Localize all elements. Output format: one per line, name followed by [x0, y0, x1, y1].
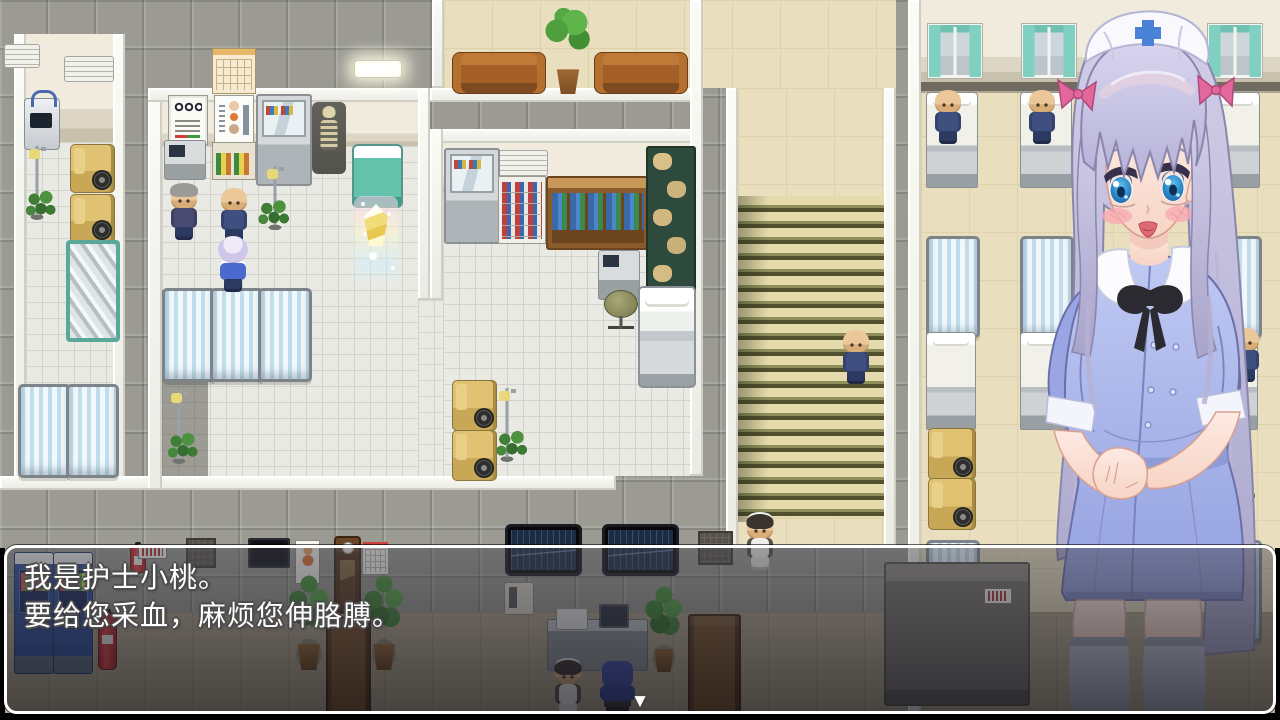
blush-right: [1165, 206, 1193, 222]
wheelchair: [70, 144, 115, 193]
npc-bald-patient: [932, 90, 964, 142]
npc-bald-patient: [840, 330, 872, 386]
privacy-screen: [162, 288, 216, 382]
potted-plant: [256, 194, 292, 230]
npc-head: [843, 330, 869, 354]
air-conditioner: [498, 150, 548, 176]
standing-mirror: [66, 240, 120, 342]
game-viewport[interactable]: 我是护士小桃。 要给您采血，麻烦您伸胳膊。 ▼: [0, 0, 1280, 720]
room-floor-seam: [418, 300, 443, 476]
letterbox-bottom: [0, 713, 1280, 720]
ward-bed: [926, 332, 976, 430]
npc-hair: [218, 236, 248, 263]
folding-screen: [66, 384, 119, 478]
stairs-shadow: [738, 196, 768, 522]
dialog-box[interactable]: 我是护士小桃。 要给您采血，麻烦您伸胳膊。 ▼: [4, 545, 1276, 714]
npc-hair: [170, 183, 198, 197]
potted-plant: [494, 424, 530, 462]
folding-screen: [18, 384, 71, 478]
wheelchair: [70, 194, 115, 243]
wheelchair: [452, 380, 497, 431]
wall-calendar: [212, 48, 256, 94]
potted-tree: [540, 6, 596, 94]
dialog-line-1: 我是护士小桃。: [7, 559, 1273, 597]
npc-old-man: [166, 186, 202, 244]
npc-body: [935, 112, 961, 132]
npc-body: [171, 208, 197, 228]
npc-body: [220, 260, 246, 280]
storage-rack: [646, 146, 696, 294]
wheelchair: [452, 430, 497, 481]
air-conditioner: [4, 44, 40, 68]
npc-body: [221, 210, 247, 230]
npc-body: [843, 352, 869, 372]
medicine-cabinet: [256, 94, 312, 186]
bottle-shelf: [212, 142, 256, 180]
dish-shelf: [498, 176, 546, 244]
wheelchair: [928, 428, 976, 480]
anatomy-poster: [214, 95, 254, 147]
hospital-bed: [638, 286, 696, 388]
wheelchair: [928, 478, 976, 530]
couch: [452, 52, 546, 94]
npc-legs: [224, 279, 242, 292]
potted-plant: [166, 426, 200, 464]
npc-legs: [175, 227, 193, 240]
npc-head: [935, 90, 961, 114]
window-curtains: [928, 24, 982, 78]
wall: [884, 88, 896, 548]
npc-hair: [747, 514, 774, 529]
wall: [430, 129, 703, 143]
privacy-screen: [210, 288, 264, 382]
wall: [432, 0, 444, 88]
blush-left: [1102, 208, 1132, 224]
eye-chart: [168, 95, 208, 145]
wooden-shelf: [546, 176, 650, 250]
light-fixture: [354, 60, 402, 78]
save-crystal: [354, 196, 398, 286]
office-stool: [600, 288, 642, 330]
npc-head: [221, 188, 247, 212]
laptop-desk: [164, 140, 206, 180]
dialog-line-2: 要给您采血，麻烦您伸胳膊。: [7, 597, 1273, 635]
wall: [0, 476, 616, 490]
wall: [430, 129, 443, 300]
privacy-screen: [258, 288, 312, 382]
wall: [726, 88, 738, 548]
wall: [148, 88, 162, 490]
couch: [594, 52, 688, 94]
air-conditioner: [64, 56, 114, 82]
privacy-screen: [926, 236, 980, 338]
npc-legs: [939, 131, 957, 144]
medical-monitor: [24, 98, 60, 150]
npc-girl-player: [212, 238, 254, 296]
npc-legs: [847, 371, 865, 384]
continue-indicator-icon[interactable]: ▼: [631, 692, 650, 711]
corridor-floor: [738, 88, 884, 200]
potted-plant: [24, 184, 58, 222]
skeleton-model: [312, 102, 346, 174]
steel-cabinet: [444, 148, 500, 244]
hands-clasped: [1093, 448, 1147, 499]
wall: [418, 88, 430, 300]
